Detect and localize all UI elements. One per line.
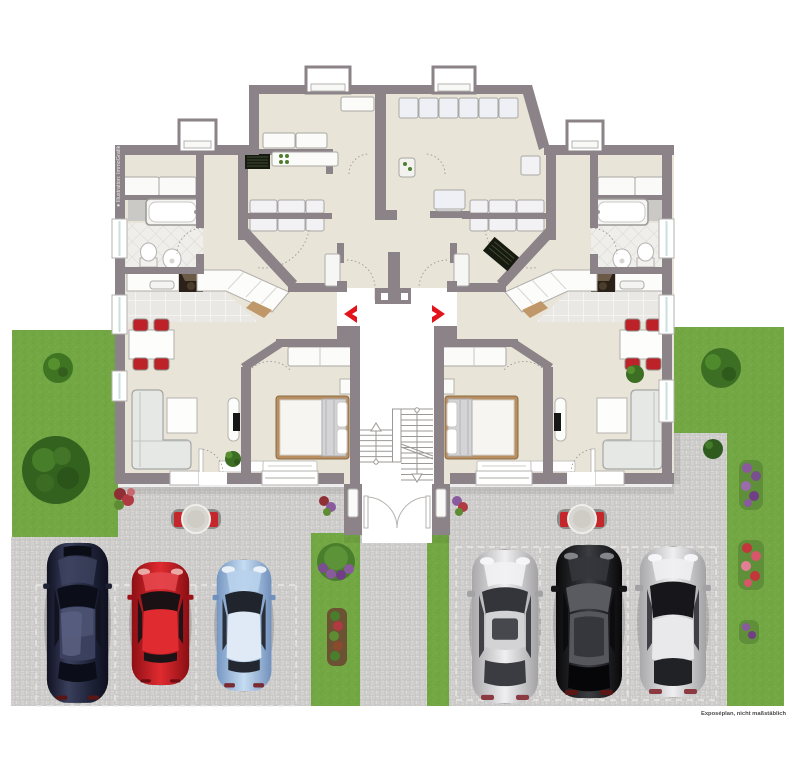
svg-text:Exposéplan, nicht maßstäblich: Exposéplan, nicht maßstäblich: [701, 711, 786, 717]
svg-text:● Illustration: ImmoGrafik: ● Illustration: ImmoGrafik: [116, 145, 122, 207]
